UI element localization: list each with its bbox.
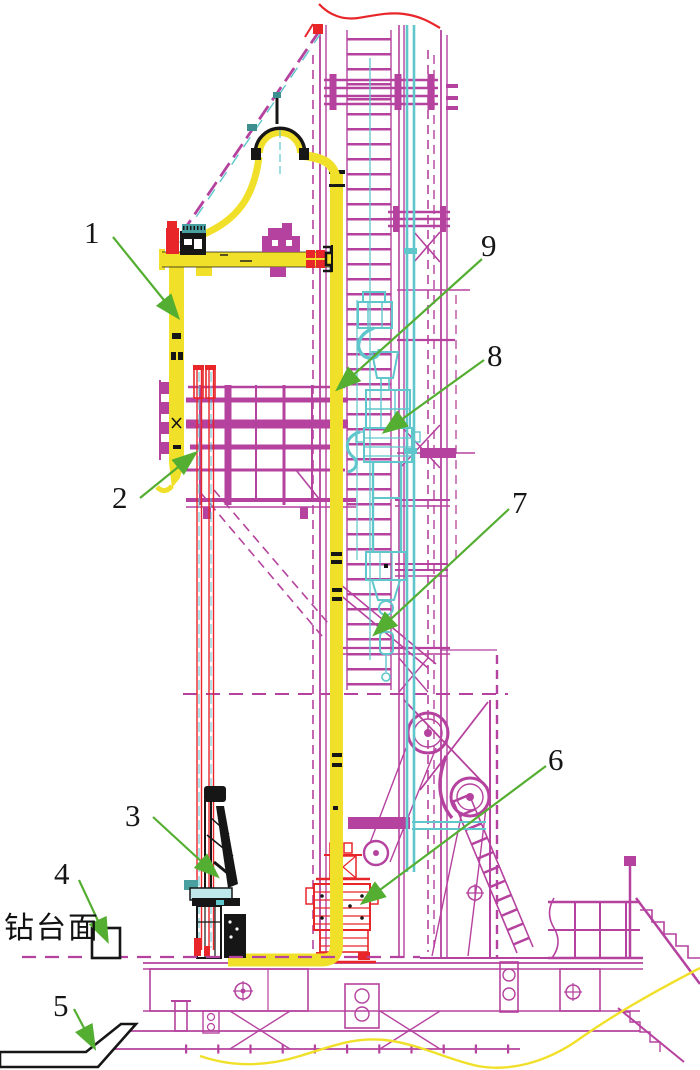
callout-label-6: 6: [548, 744, 564, 775]
callout-label-2: 2: [112, 482, 128, 513]
callout-label-9: 9: [481, 230, 497, 261]
callout-label-7: 7: [512, 487, 528, 518]
callout-label-4: 4: [54, 858, 70, 889]
pipe-handler: [184, 786, 246, 958]
catwalk-chute: [0, 1024, 136, 1067]
callout-label-5: 5: [53, 990, 69, 1021]
callout-label-3: 3: [125, 800, 141, 831]
callout-arrow-8: [387, 360, 484, 430]
callout-label-1: 1: [84, 217, 100, 248]
bottom-break-line: [200, 968, 700, 1068]
callout-arrow-5: [74, 1009, 93, 1045]
top-drive: [347, 292, 420, 681]
standpipe-and-hoses: [157, 155, 345, 960]
rig-line-drawing: [0, 0, 700, 1070]
mast-structure: [183, 25, 533, 958]
callout-arrows: [74, 237, 546, 1045]
diagram-canvas: 1 2 3 4 5 6 7 8 9 钻台面: [0, 0, 700, 1070]
top-break-line: [319, 4, 440, 28]
drill-floor-label: 钻台面: [4, 912, 100, 946]
callout-label-8: 8: [487, 340, 503, 371]
arm-winch: [262, 223, 300, 277]
arm-trolley: [166, 221, 206, 255]
